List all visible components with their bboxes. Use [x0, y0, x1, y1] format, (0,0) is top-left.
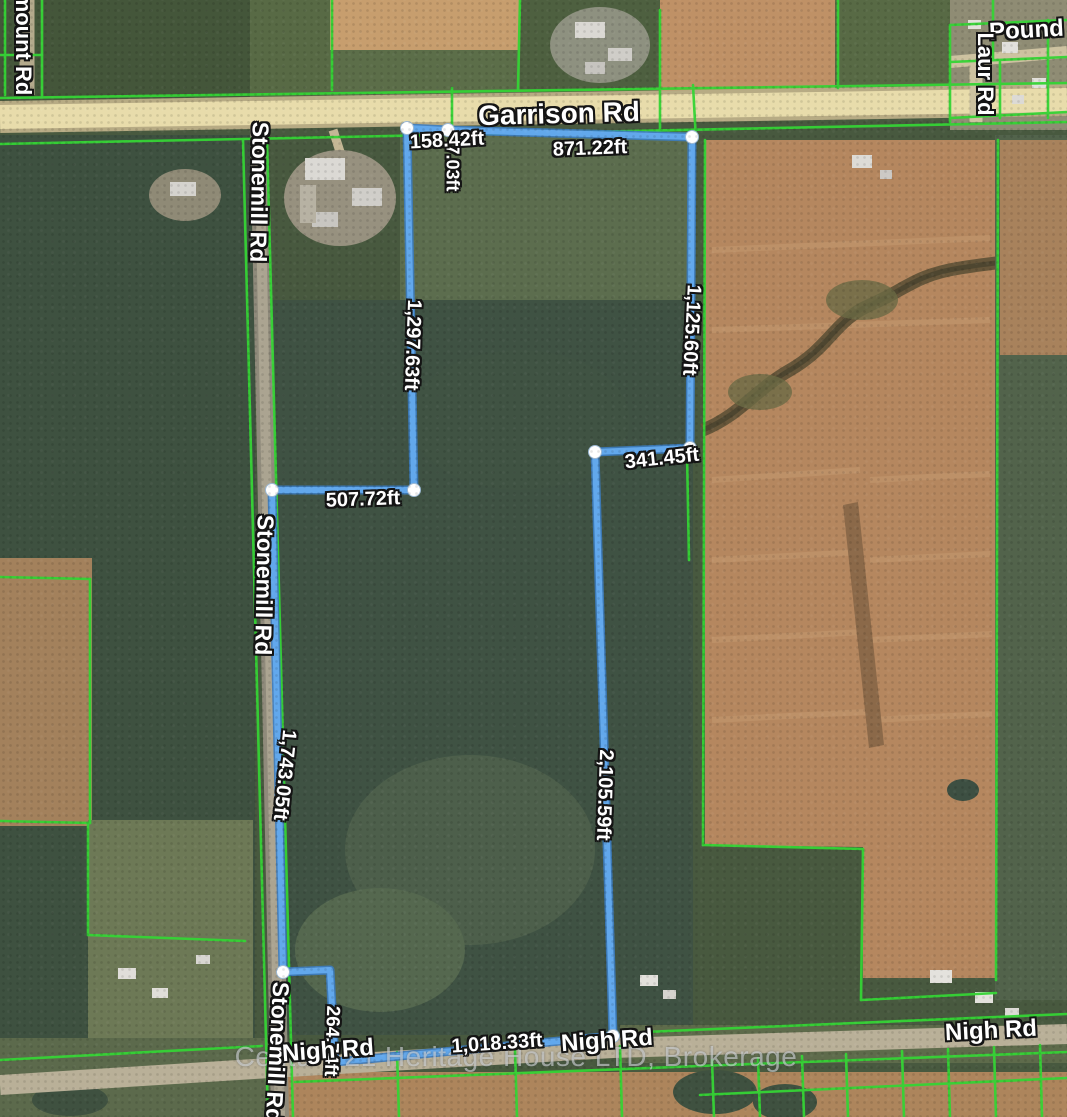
nigh-rd-label-right: Nigh Rd	[944, 1015, 1037, 1048]
laur-rd-label: Laur Rd	[972, 32, 998, 115]
measurement-west-boundary-upper: 1,297.63ft	[399, 299, 425, 391]
measurement-east-boundary-lower: 2,105.59ft	[591, 749, 617, 841]
satellite-imagery	[0, 0, 1067, 1117]
stonemill-rd-label-top: Stonemill Rd	[244, 121, 273, 262]
garrison-rd-label: Garrison Rd	[478, 96, 641, 132]
aerial-map: Century 21 Heritage House LTD, Brokerage…	[0, 0, 1067, 1117]
stonemill-rd-label-middle: Stonemill Rd	[249, 514, 278, 655]
measurement-interior-west: 507.72ft	[325, 487, 400, 513]
pound-rd-label: Pound A	[988, 13, 1067, 46]
measurement-garrison-frontage-east: 871.22ft	[552, 136, 627, 162]
mount-rd-label: mount Rd	[10, 0, 36, 95]
terrain	[0, 0, 1067, 1117]
measurement-garrison-frontage-west: 158.42ft	[409, 128, 485, 155]
measurement-east-boundary-upper: 1,125.60ft	[677, 284, 705, 376]
